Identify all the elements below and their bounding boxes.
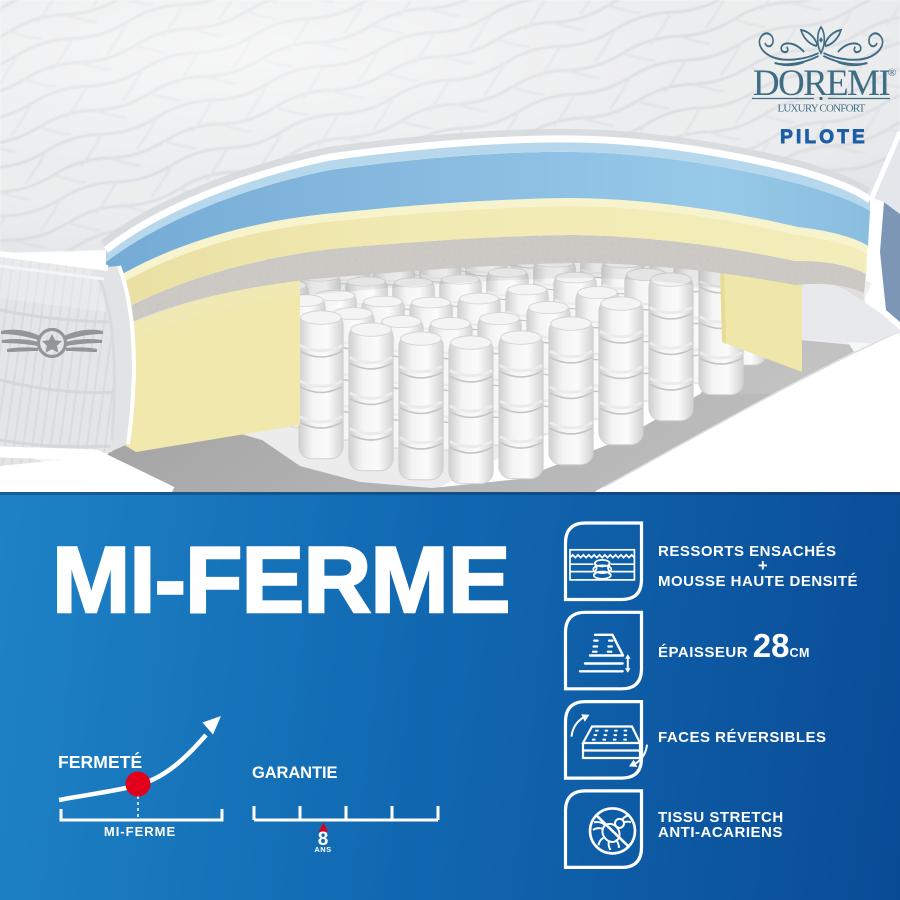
- svg-text:PILOTE: PILOTE: [780, 127, 868, 148]
- svg-text:LUXURY CONFORT: LUXURY CONFORT: [777, 103, 865, 115]
- svg-text:®: ®: [888, 67, 896, 79]
